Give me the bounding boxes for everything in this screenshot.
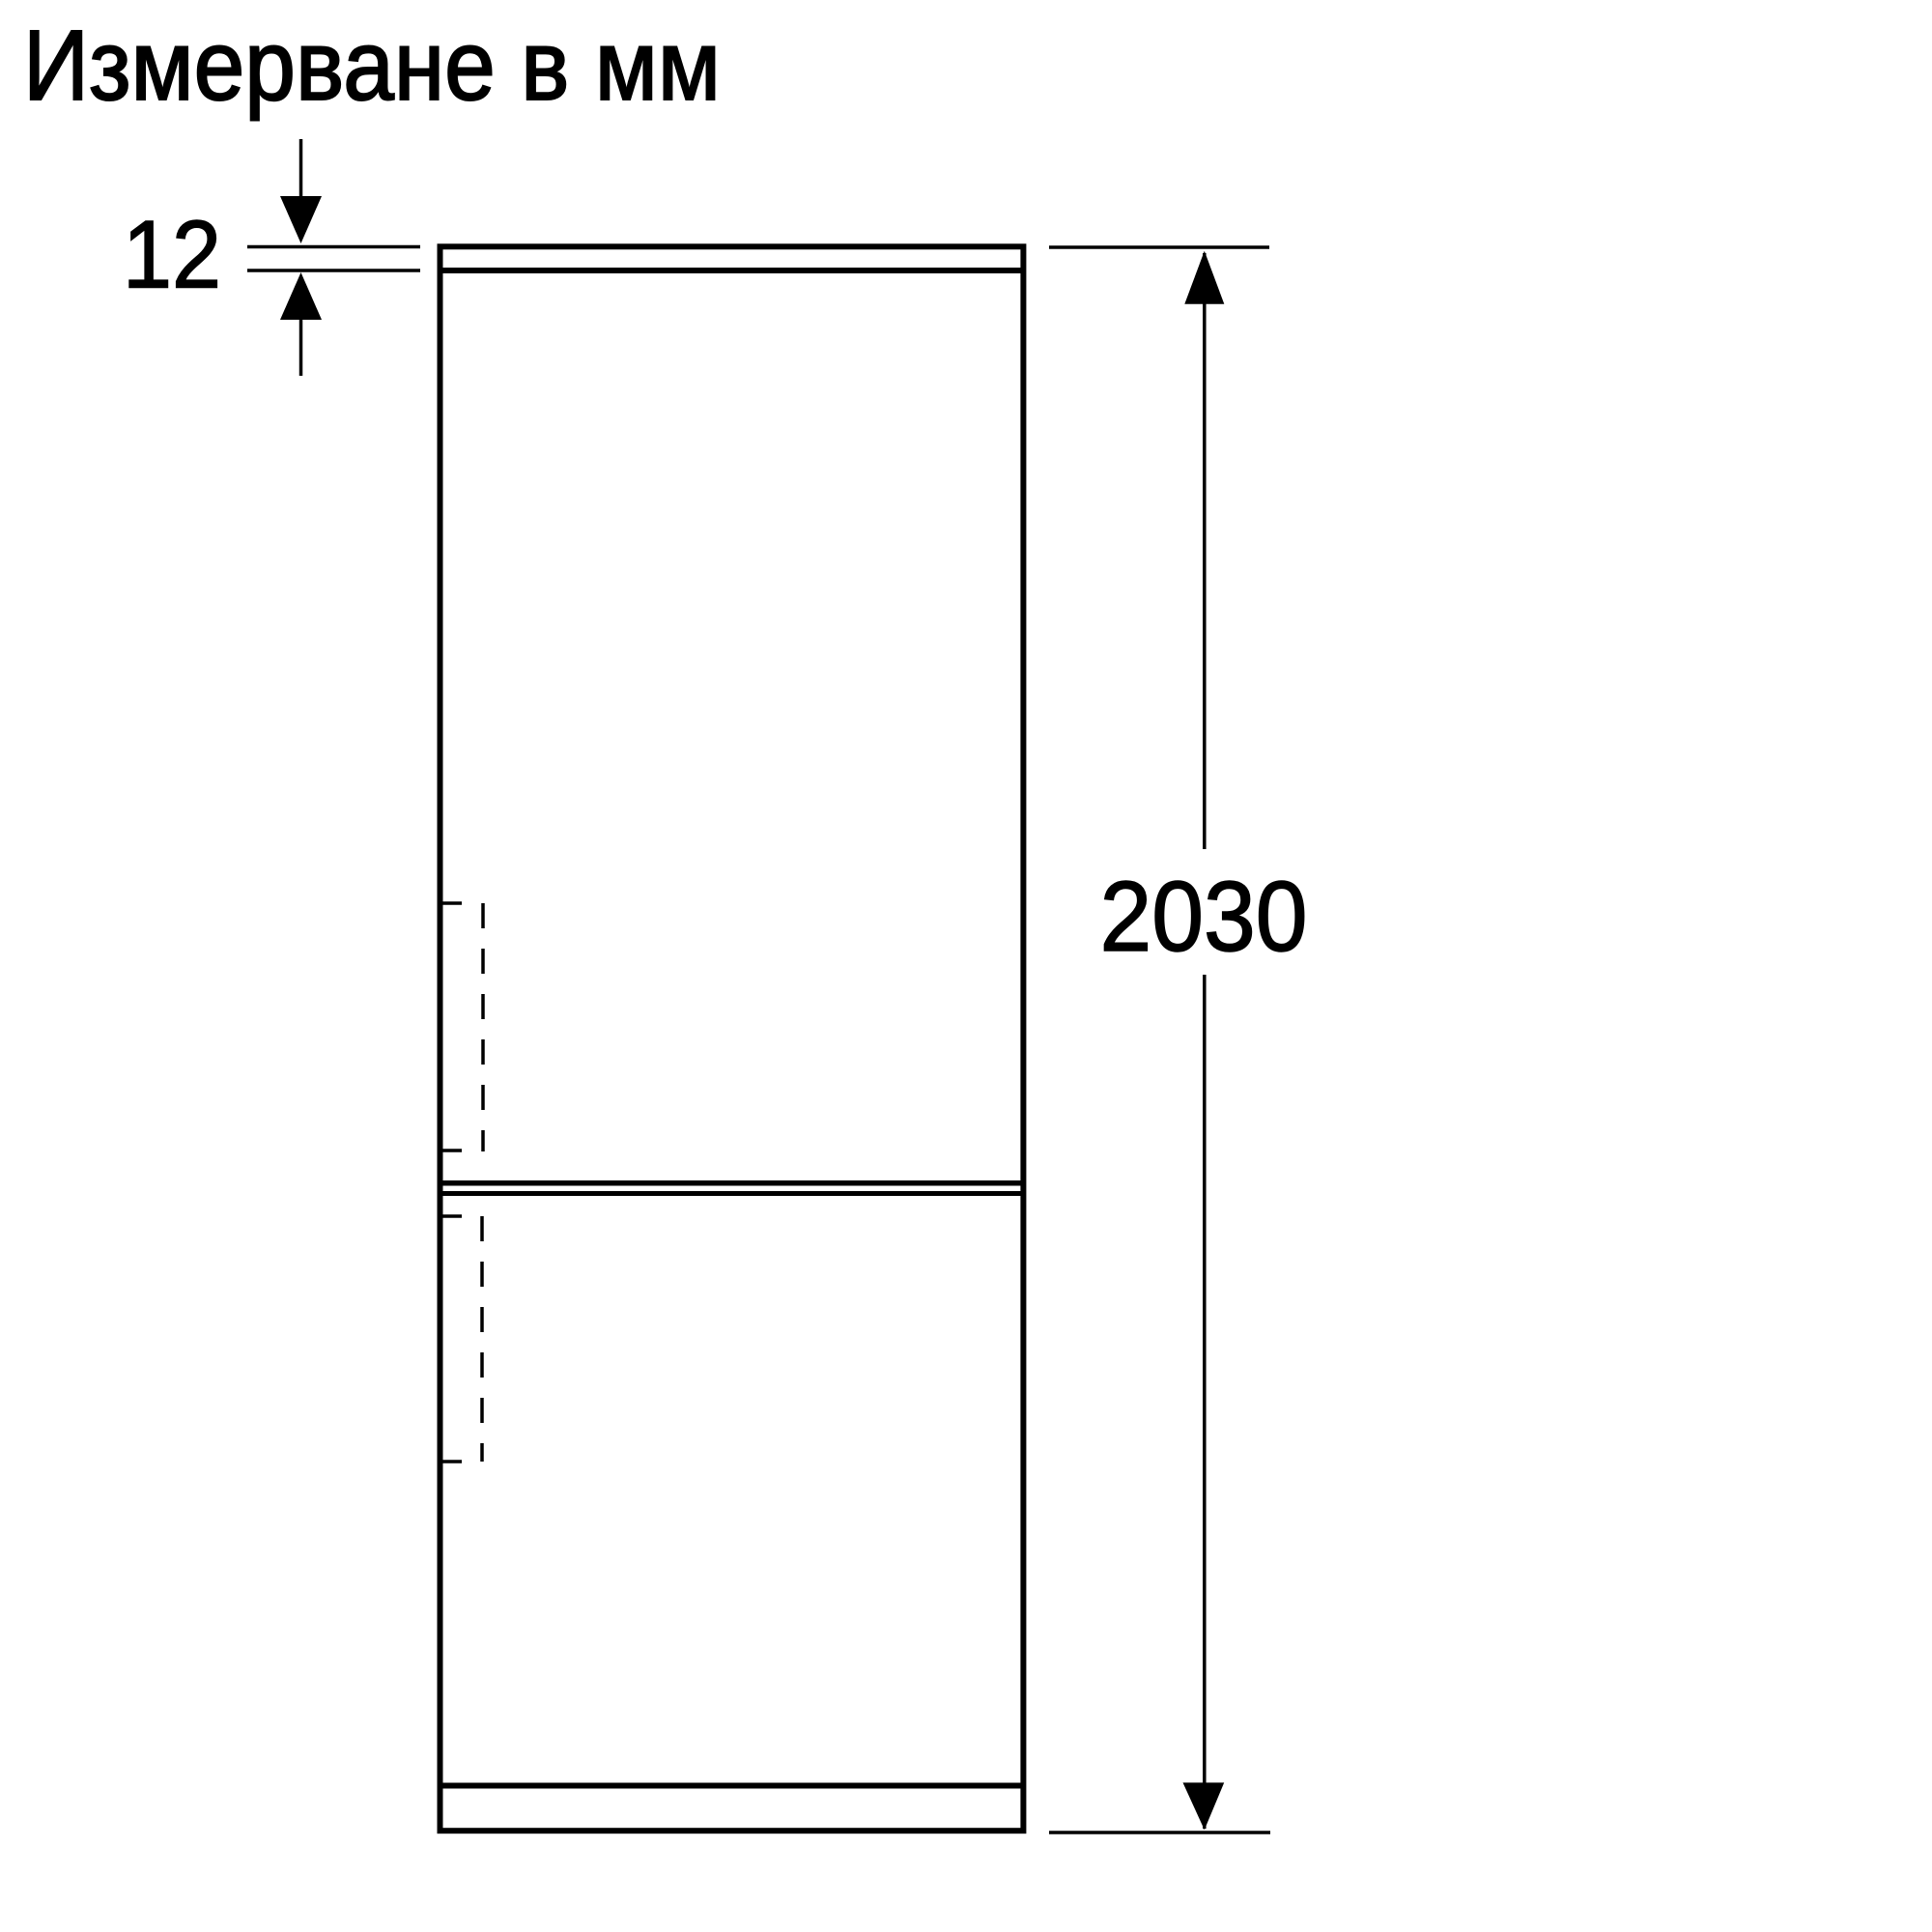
svg-text:Измерване в мм: Измерване в мм (23, 10, 721, 121)
svg-text:12: 12 (123, 201, 221, 308)
svg-text:2030: 2030 (1100, 861, 1308, 972)
